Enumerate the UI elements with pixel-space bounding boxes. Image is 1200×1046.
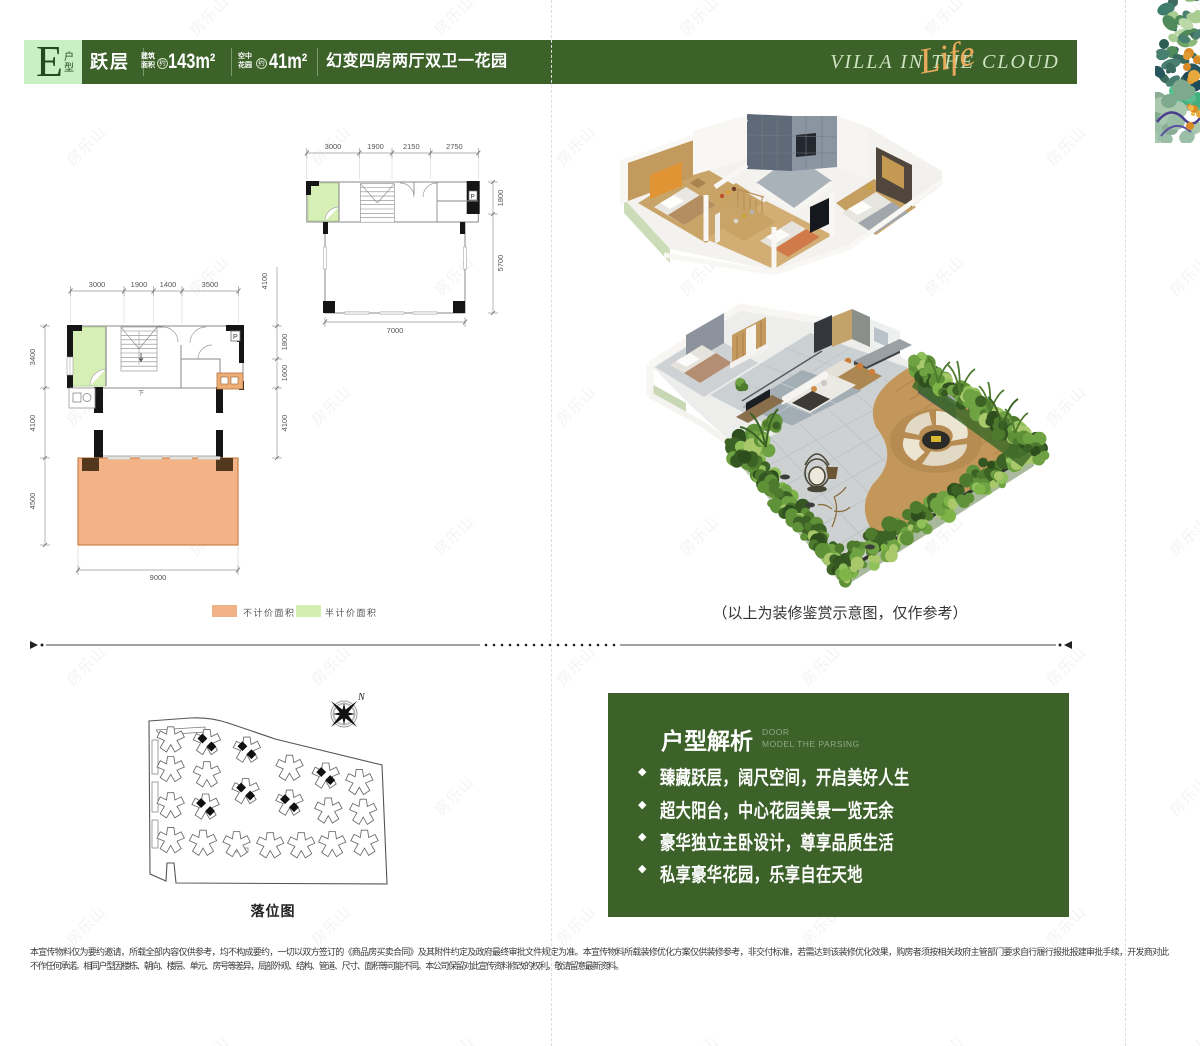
svg-text:9000: 9000 — [150, 573, 167, 582]
svg-text:3400: 3400 — [28, 349, 37, 366]
svg-text:3500: 3500 — [202, 280, 219, 289]
svg-text:下: 下 — [138, 390, 144, 397]
svg-text:7000: 7000 — [387, 326, 404, 335]
svg-text:4100: 4100 — [280, 415, 289, 432]
svg-text:1900: 1900 — [131, 280, 148, 289]
svg-text:3000: 3000 — [89, 280, 106, 289]
svg-text:2150: 2150 — [403, 142, 420, 151]
svg-text:1800: 1800 — [496, 190, 505, 207]
svg-text:3000: 3000 — [325, 142, 342, 151]
svg-text:1600: 1600 — [280, 365, 289, 382]
svg-text:5700: 5700 — [496, 255, 505, 272]
svg-text:1900: 1900 — [367, 142, 384, 151]
svg-text:P: P — [471, 194, 475, 201]
svg-text:1400: 1400 — [160, 280, 177, 289]
svg-text:4100: 4100 — [260, 273, 269, 290]
svg-text:P: P — [233, 334, 238, 341]
svg-text:2750: 2750 — [446, 142, 463, 151]
svg-text:N: N — [357, 692, 366, 703]
svg-text:4500: 4500 — [28, 493, 37, 510]
svg-text:4100: 4100 — [28, 415, 37, 432]
